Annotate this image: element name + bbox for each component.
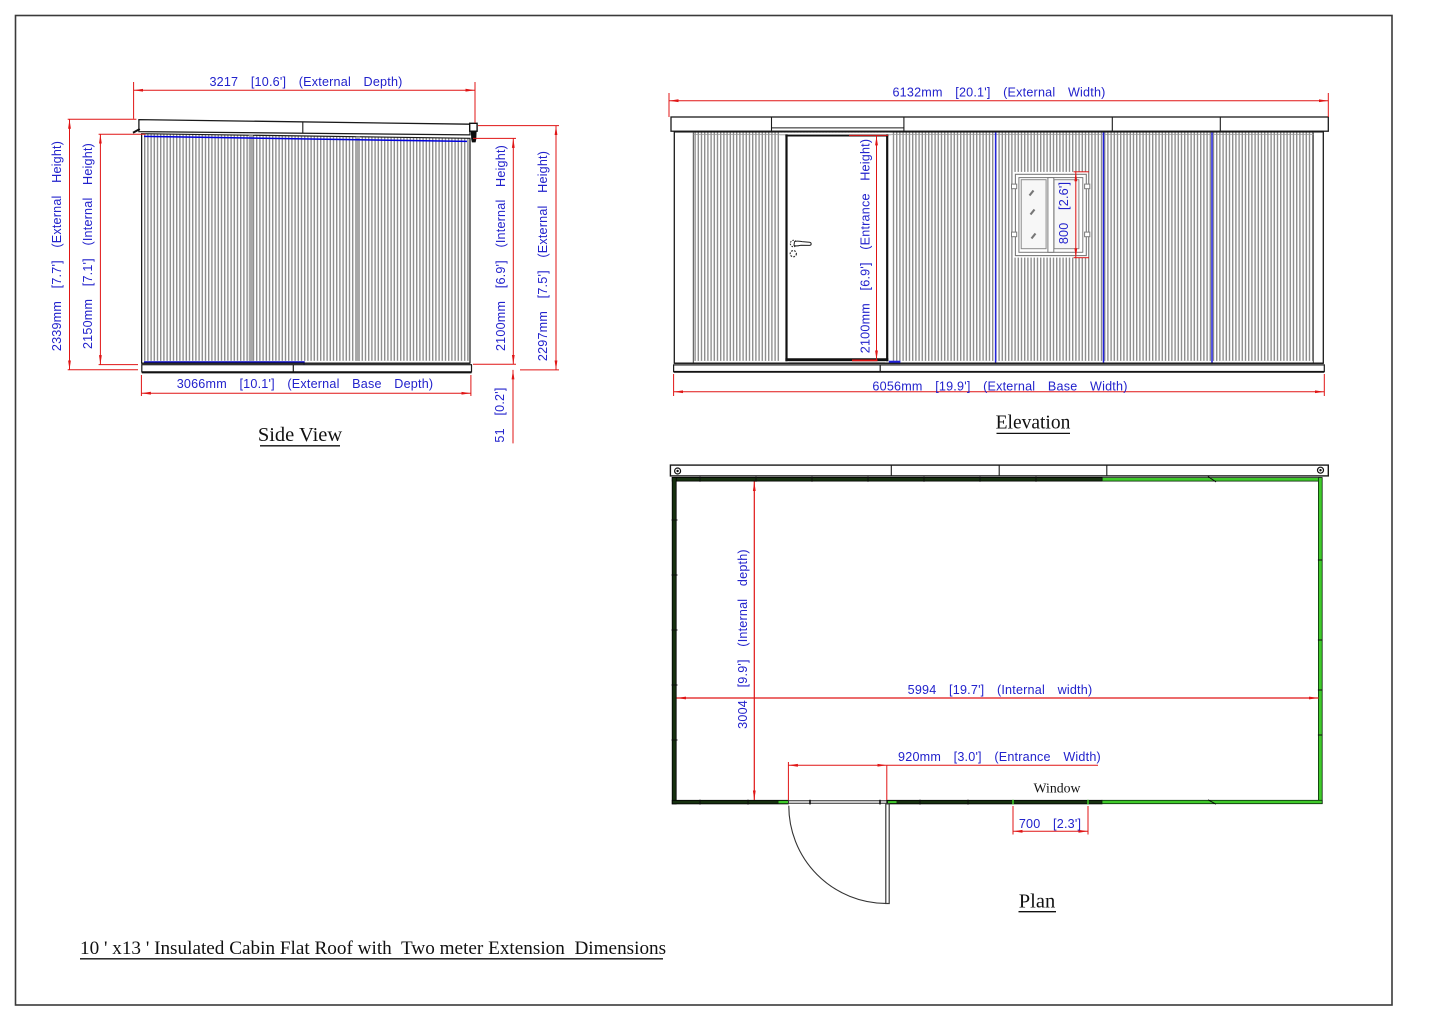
svg-text:2297mm [7.5'] (External Hei: 2297mm [7.5'] (External Height) [536, 151, 550, 361]
svg-text:2150mm [7.1'] (Internal Hei: 2150mm [7.1'] (Internal Height) [81, 143, 95, 349]
svg-text:10 ' x13 ' Insulated Cabin Fla: 10 ' x13 ' Insulated Cabin Flat Roof wit… [80, 938, 666, 959]
svg-text:2100mm [6.9'] (Internal Hei: 2100mm [6.9'] (Internal Height) [494, 145, 508, 351]
svg-text:Plan: Plan [1019, 891, 1055, 913]
svg-text:Elevation: Elevation [996, 413, 1071, 434]
svg-text:920mm [3.0'] (Entrance Widt: 920mm [3.0'] (Entrance Width) [898, 750, 1101, 764]
svg-text:6132mm [20.1'] (External Wi: 6132mm [20.1'] (External Width) [892, 86, 1105, 100]
svg-text:700 [2.3']: 700 [2.3'] [1019, 817, 1081, 831]
svg-text:6056mm [19.9'] (External Ba: 6056mm [19.9'] (External Base Width) [872, 380, 1127, 394]
svg-text:800 [2.6']: 800 [2.6'] [1057, 182, 1071, 244]
svg-text:3004 [9.9'] (Internal depth: 3004 [9.9'] (Internal depth) [736, 549, 750, 729]
svg-text:Side View: Side View [258, 424, 343, 446]
svg-text:5994 [19.7'] (Internal widt: 5994 [19.7'] (Internal width) [908, 683, 1093, 697]
svg-text:3217 [10.6'] (External Dept: 3217 [10.6'] (External Depth) [209, 75, 402, 89]
svg-text:2339mm [7.7'] (External Hei: 2339mm [7.7'] (External Height) [50, 141, 64, 351]
svg-text:51 [0.2']: 51 [0.2'] [493, 387, 507, 442]
svg-text:2100mm [6.9'] (Entrance Hei: 2100mm [6.9'] (Entrance Height) [859, 139, 873, 354]
svg-text:Window: Window [1034, 781, 1081, 796]
svg-text:3066mm [10.1'] (External Ba: 3066mm [10.1'] (External Base Depth) [177, 377, 434, 391]
